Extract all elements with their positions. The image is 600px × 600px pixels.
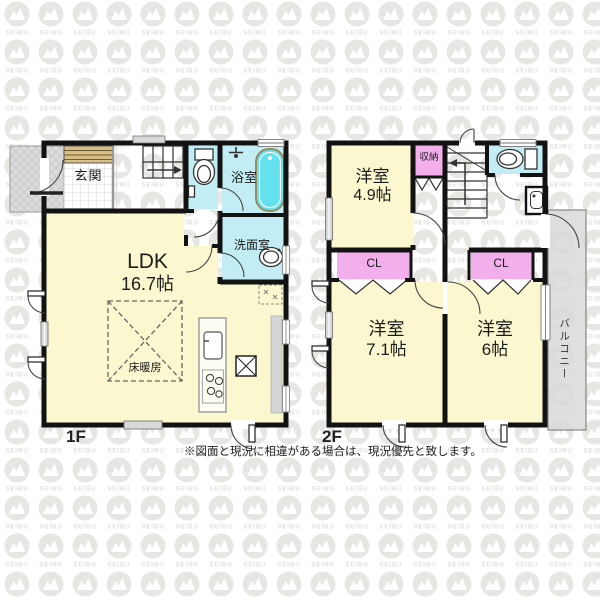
balcony-label: バルコニー xyxy=(558,292,570,407)
room6-label: 洋室 6帖 xyxy=(447,319,543,359)
window-top-stairs xyxy=(133,136,165,143)
genkan-label: 玄関 xyxy=(64,169,113,184)
floor-plan-graphic: SEIBU xyxy=(0,0,600,600)
toilet-icon-2f xyxy=(497,149,537,169)
porch xyxy=(10,146,64,212)
window-left-sliver xyxy=(41,322,48,346)
room49-name: 洋室 xyxy=(356,167,390,186)
floor-plan-image: SEIBU xyxy=(0,0,600,600)
floor-label-2f: 2F xyxy=(322,427,342,447)
floor-heating-label: 床暖房 xyxy=(116,362,174,375)
room71-size: 7.1帖 xyxy=(330,340,443,360)
storage-label: 収納 xyxy=(414,153,444,164)
cl-left-label: CL xyxy=(337,257,411,271)
kitchen-counter xyxy=(199,318,226,412)
shoe-cabinet xyxy=(64,146,113,163)
room49-label: 洋室 4.9帖 xyxy=(330,167,415,205)
ldk-label: LDK 16.7帖 xyxy=(95,250,200,295)
window-bath-top xyxy=(258,140,284,147)
ldk-name: LDK xyxy=(127,250,168,273)
cl-right-label: CL xyxy=(470,257,532,271)
ldk-size: 16.7帖 xyxy=(95,274,200,295)
counter-strip xyxy=(271,316,282,413)
bathroom-label: 浴室 xyxy=(221,171,267,186)
room49-size: 4.9帖 xyxy=(330,187,415,205)
windows-right-wall xyxy=(283,246,290,412)
room71-label: 洋室 7.1帖 xyxy=(330,319,443,359)
window-top-toilet xyxy=(500,140,536,147)
window-bottom xyxy=(124,421,162,429)
floor-label-1f: 1F xyxy=(66,427,86,447)
washroom-label: 洗面室 xyxy=(220,239,284,253)
room71-name: 洋室 xyxy=(369,319,405,339)
room6-name: 洋室 xyxy=(477,319,513,339)
room6-size: 6帖 xyxy=(447,340,543,360)
kitchen-sink xyxy=(204,332,222,359)
refrigerator-space xyxy=(236,356,256,376)
disclaimer-text: ※図面と現況に相違がある場合は、現況優先と致します。 xyxy=(184,446,482,459)
